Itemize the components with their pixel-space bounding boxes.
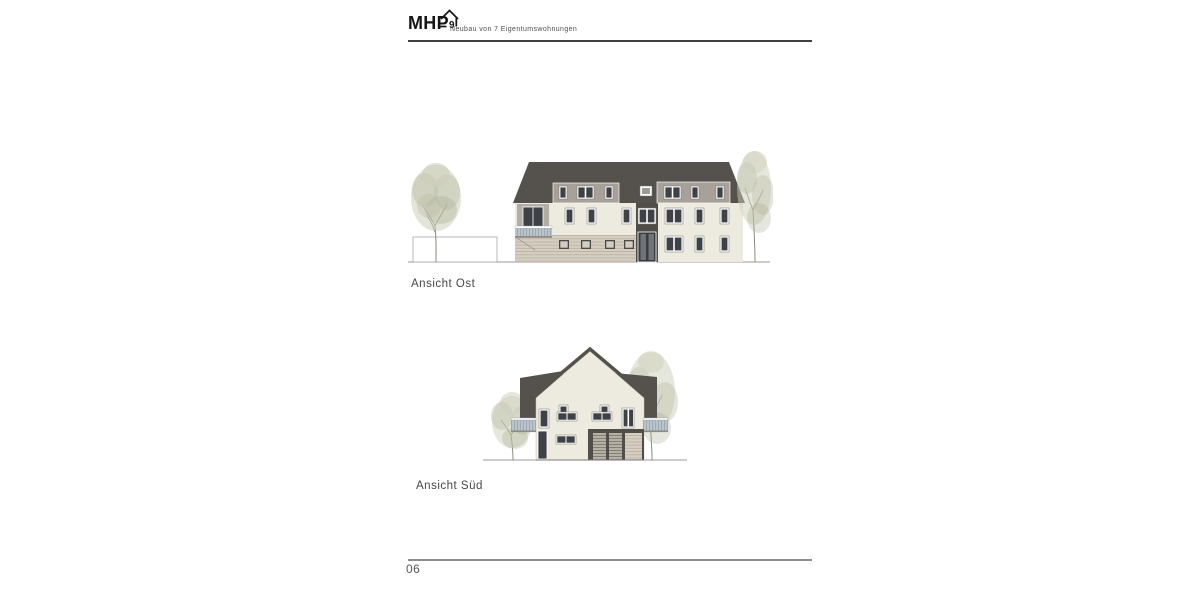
building-east-elevation: [513, 162, 745, 262]
header-divider: [408, 40, 812, 42]
balcony-railing-left: [511, 419, 536, 432]
side-door: [538, 431, 547, 459]
ansicht-ost-drawing: [403, 140, 773, 265]
ansicht-sued-drawing: [475, 340, 695, 465]
fence-outline: [413, 237, 497, 262]
page-number: 06: [406, 562, 420, 576]
balcony-railing: [515, 227, 552, 237]
balcony-railing-right: [643, 419, 668, 432]
plan-sheet: MHP 9 Neubau von 7 Eigentumswohnungen: [0, 0, 1200, 600]
footer-divider: [408, 559, 812, 561]
drawing-label-east: Ansicht Ost: [411, 278, 475, 290]
drawing-label-south: Ansicht Süd: [416, 480, 483, 492]
project-title: Neubau von 7 Eigentumswohnungen: [450, 26, 577, 33]
